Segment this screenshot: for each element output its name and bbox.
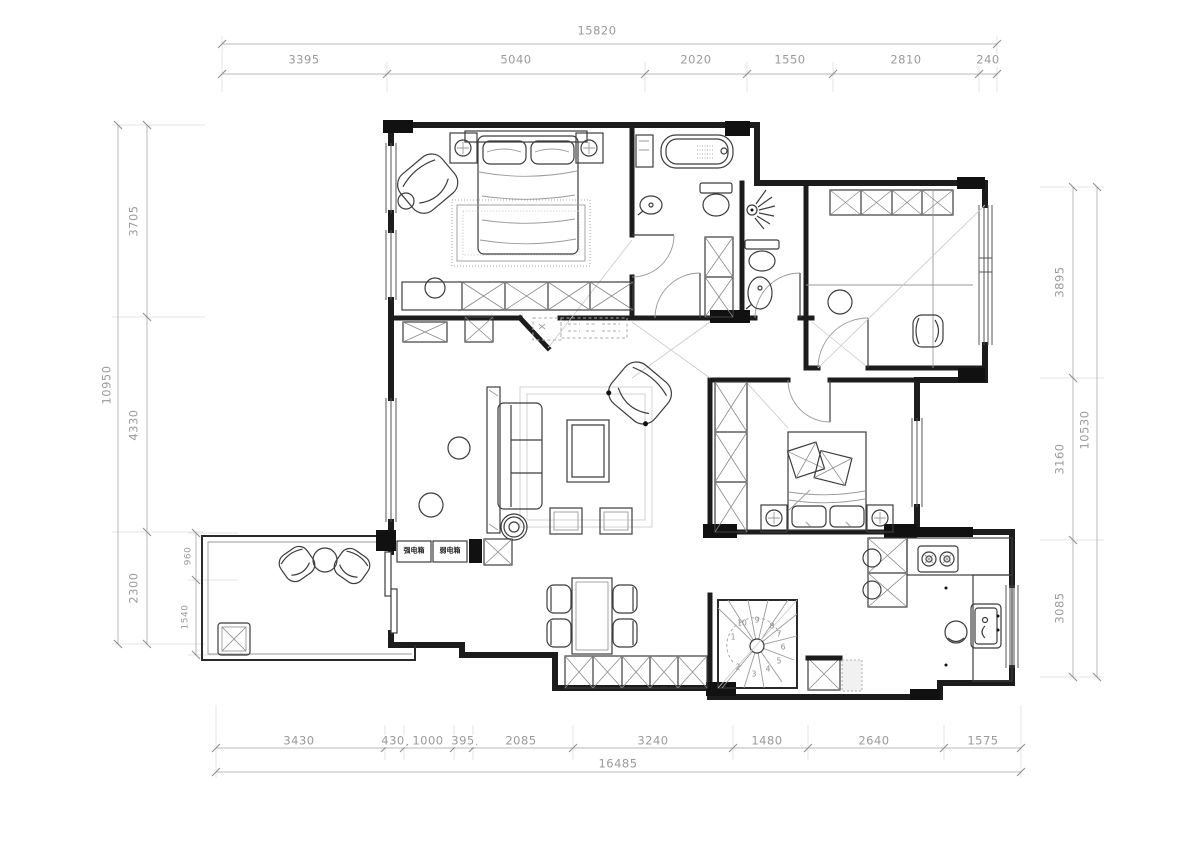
dim-balcony-1: 960	[185, 545, 194, 568]
dining-table	[572, 578, 612, 654]
small-cabinet-2	[465, 317, 493, 342]
dim-top-seg-4: 1550	[772, 54, 807, 66]
sink-1	[638, 196, 662, 215]
dim-right-seg-1: 3895	[1054, 264, 1066, 299]
study-room	[806, 190, 985, 368]
study-lamp	[828, 290, 852, 314]
windows	[385, 143, 1018, 668]
dim-top-seg-2: 5040	[498, 54, 533, 66]
dim-top-total: 15820	[575, 25, 618, 37]
stair-step-2: 2	[736, 663, 741, 671]
ottoman-2	[600, 508, 632, 534]
shoe-cabinet	[808, 658, 840, 690]
stair-step-9: 9	[755, 616, 760, 624]
kitchen	[863, 538, 1012, 681]
dim-top-seg-3: 2020	[678, 54, 713, 66]
living-window	[386, 398, 396, 522]
stair-step-4: 4	[766, 665, 771, 673]
stair-step-3: 3	[752, 670, 757, 678]
master-window-2	[386, 230, 396, 300]
dim-top-seg-6: 240	[974, 54, 1001, 66]
stair-step-6: 6	[781, 643, 786, 651]
dining-area	[547, 578, 707, 688]
living-room	[397, 317, 678, 565]
toilet-1	[700, 183, 732, 216]
door-mat	[842, 660, 862, 691]
master-bed	[465, 131, 587, 254]
dim-bottom-seg-3: 1000	[410, 735, 445, 747]
balcony-chair-right	[330, 545, 373, 588]
cooktop	[918, 546, 958, 572]
side-table	[398, 193, 414, 209]
weak-current-box-label: 弱电箱	[440, 548, 461, 555]
desk-chair	[913, 315, 943, 347]
bedroom2-wardrobe	[715, 382, 747, 532]
dim-left-seg-2: 4330	[128, 407, 140, 442]
stair-step-8: 8	[770, 622, 775, 630]
kitchen-cabinet	[863, 538, 907, 607]
dim-left-seg-3: 2300	[128, 570, 140, 605]
bath-cabinet	[705, 237, 733, 317]
strong-current-box-label: 强电箱	[404, 548, 425, 555]
interior-walls	[391, 125, 985, 688]
dim-bottom-seg-6: 3240	[635, 735, 670, 747]
balcony-sliding-door	[385, 552, 397, 633]
floor-lamp-2	[419, 493, 443, 517]
kitchen-sink	[971, 604, 1001, 648]
dim-bottom-seg-8: 2640	[856, 735, 891, 747]
sink-2	[746, 277, 772, 309]
dim-bottom-total: 16485	[596, 758, 639, 770]
floor-lamp-1	[448, 437, 470, 459]
nightstand-2l	[761, 505, 787, 532]
floor-drain	[218, 623, 250, 655]
study-desk	[806, 190, 973, 368]
dim-bottom-seg-4: 395	[449, 735, 476, 747]
balcony	[202, 536, 415, 660]
bedroom-2	[715, 382, 893, 532]
master-bedroom	[392, 131, 633, 310]
sideboard	[565, 656, 707, 688]
stair-step-10: 10	[737, 619, 747, 627]
columns	[376, 120, 985, 700]
dim-bottom-seg-2: 430	[379, 735, 406, 747]
overhead-dashed	[533, 318, 627, 340]
shower-head	[747, 190, 775, 229]
study-window	[979, 205, 992, 345]
floor-plan-drawing	[0, 0, 1200, 848]
dim-bottom-seg-9: 1575	[965, 735, 1000, 747]
dim-bottom-seg-5: 2085	[503, 735, 538, 747]
shower-room	[745, 190, 779, 309]
dim-right-seg-3: 3085	[1054, 590, 1066, 625]
dining-chairs	[547, 585, 637, 647]
dim-right-total: 10530	[1079, 408, 1091, 451]
dim-bottom-seg-7: 1480	[749, 735, 784, 747]
balcony-table	[313, 548, 337, 572]
dim-left-total: 10950	[101, 363, 113, 406]
study-wardrobe	[830, 190, 953, 215]
bath-door-arc	[632, 235, 674, 277]
dim-right-seg-2: 3160	[1054, 441, 1066, 476]
coffee-table	[567, 420, 609, 482]
bathtub	[661, 135, 733, 168]
bedroom2-window	[912, 418, 922, 507]
ottoman-1	[550, 508, 582, 534]
stair-step-1: 1	[731, 633, 736, 641]
dim-top-seg-1: 3395	[286, 54, 321, 66]
small-cabinet-1	[403, 322, 447, 342]
master-rug	[452, 200, 590, 266]
floor-plan-canvas: 15820 3395 5040 2020 1550 2810 240 3430 …	[0, 0, 1200, 848]
bathroom-main	[636, 135, 733, 317]
bath-shelf	[636, 135, 653, 167]
living-rug	[520, 387, 652, 527]
dimension-lines	[112, 36, 1104, 778]
master-window-1	[386, 143, 396, 213]
dim-balcony-2: 1540	[182, 603, 191, 632]
toilet-2	[745, 240, 779, 271]
stair-step-7: 7	[777, 630, 782, 638]
kitchen-stool	[945, 621, 967, 643]
entry	[718, 600, 862, 691]
living-armchair	[602, 356, 677, 430]
stair-step-5: 5	[777, 657, 782, 665]
dim-top-seg-5: 2810	[888, 54, 923, 66]
balcony-chair-left	[275, 543, 318, 586]
bed-2	[787, 432, 866, 530]
dim-left-seg-1: 3705	[128, 203, 140, 238]
dim-bottom-seg-1: 3430	[281, 735, 316, 747]
